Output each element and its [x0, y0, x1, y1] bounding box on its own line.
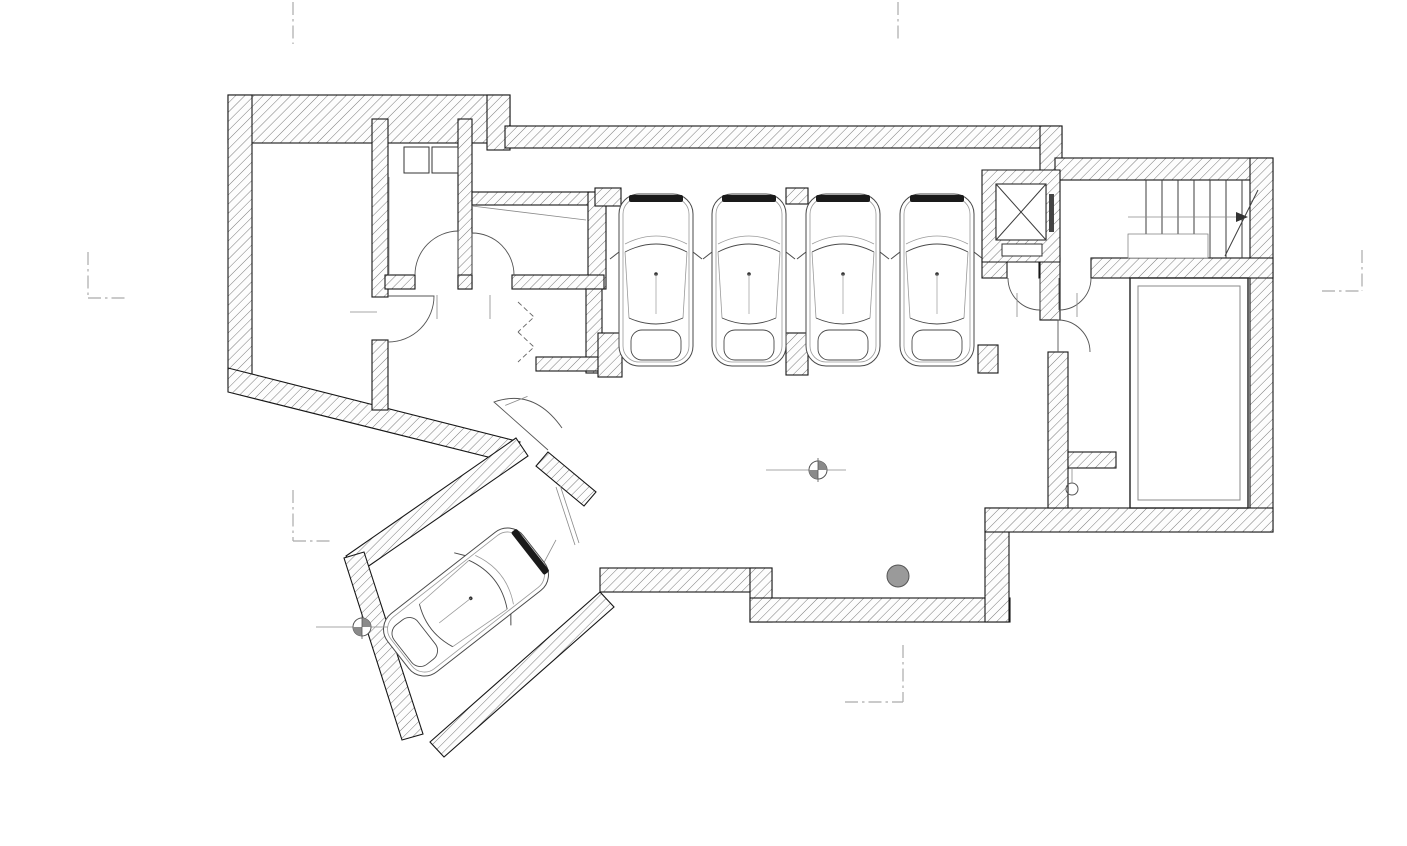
section-marker-1-right [1322, 250, 1362, 291]
washer-icon [404, 147, 429, 173]
elevator-counterweight [1002, 244, 1042, 256]
section-marker-3-middle [293, 490, 331, 541]
door-label-deposito [505, 396, 527, 405]
elevator-shaft [982, 170, 1060, 262]
floor-plan-page [0, 0, 1407, 846]
floor-drain-icon [887, 565, 909, 587]
floor-plan-svg [0, 0, 1407, 846]
folding-door-icon [518, 302, 534, 362]
car-icon [703, 194, 795, 366]
car-icon [610, 194, 702, 366]
car-icon [797, 194, 889, 366]
section-marker-2-bottom [845, 645, 903, 702]
stair-note-box [1128, 234, 1208, 258]
staircase [1128, 180, 1258, 258]
garage-level-marker [766, 458, 846, 482]
washer-icon [432, 147, 458, 173]
car-icon [891, 194, 983, 366]
section-marker-1-left [88, 252, 128, 298]
elevator-rail [1049, 194, 1054, 232]
spa-pool [1066, 278, 1248, 508]
door-label-ramp [544, 540, 556, 563]
